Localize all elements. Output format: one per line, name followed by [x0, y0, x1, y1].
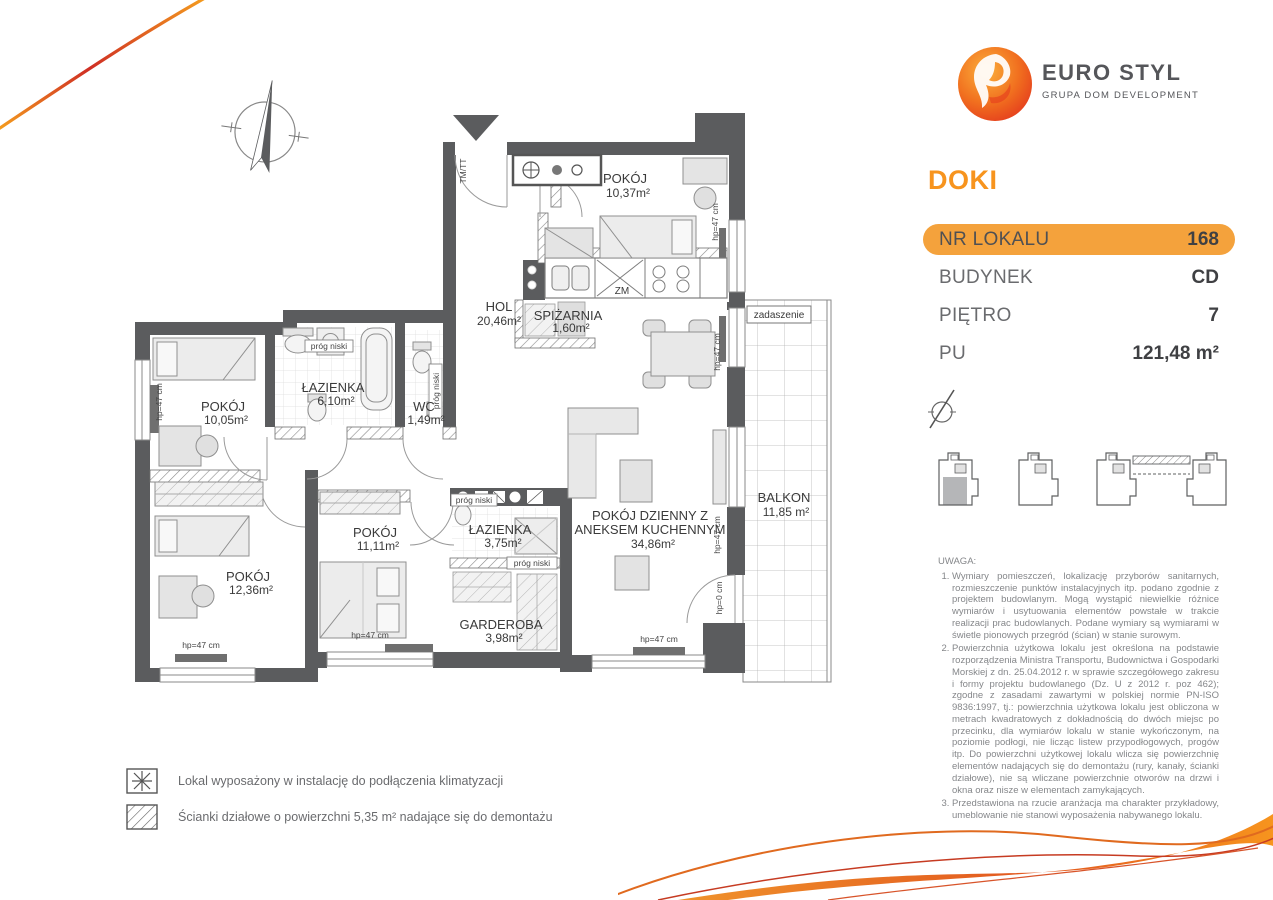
svg-text:hp=47 cm: hp=47 cm [640, 634, 678, 644]
svg-text:hp=47 cm: hp=47 cm [182, 640, 220, 650]
air-conditioning-symbol-icon [126, 768, 158, 794]
room-label: ŁAZIENKA [302, 380, 365, 395]
brand-name: EURO STYL [1042, 60, 1199, 86]
brand-text-block: EURO STYL GRUPA DOM DEVELOPMENT [1042, 60, 1199, 101]
notes-block: UWAGA: Wymiary pomieszczeń, lokalizację … [938, 556, 1219, 824]
info-label: PIĘTRO [939, 305, 1012, 327]
mini-compass-icon [926, 384, 960, 434]
info-label: PU [939, 343, 966, 365]
info-value: 168 [1187, 229, 1219, 251]
svg-text:11,11m²: 11,11m² [357, 539, 399, 553]
legend-row-klimatyzacja: Lokal wyposażony w instalację do podłącz… [126, 768, 553, 794]
key-plan-building-1 [939, 453, 978, 505]
legend-text: Lokal wyposażony w instalację do podłącz… [178, 774, 503, 788]
svg-text:3,98m²: 3,98m² [485, 631, 522, 645]
room-label: HOL [486, 299, 513, 314]
svg-text:hp=0 cm: hp=0 cm [714, 582, 724, 615]
floor-plan: zadaszenie BALKON 11,85 m² [55, 70, 845, 710]
room-label: ŁAZIENKA [469, 522, 532, 537]
info-value: 7 [1208, 305, 1219, 327]
svg-text:10,37m²: 10,37m² [606, 186, 650, 200]
legend-row-scianki: Ścianki działowe o powierzchni 5,35 m² n… [126, 804, 553, 830]
svg-text:20,46m²: 20,46m² [477, 314, 521, 328]
notes-list: Wymiary pomieszczeń, lokalizację przybor… [938, 571, 1219, 822]
room-label: POKÓJ DZIENNY Z [592, 508, 708, 523]
svg-text:12,36m²: 12,36m² [229, 583, 273, 597]
compass-icon [216, 74, 316, 177]
room-label: GARDEROBA [459, 617, 542, 632]
info-row-nr-lokalu: NR LOKALU 168 [923, 224, 1235, 255]
balkon-area: 11,85 m² [763, 505, 809, 519]
svg-text:ANEKSEM KUCHENNYM: ANEKSEM KUCHENNYM [575, 522, 726, 537]
svg-text:TM/TT: TM/TT [458, 158, 468, 183]
info-value: 121,48 m² [1132, 343, 1219, 365]
info-label: BUDYNEK [939, 267, 1033, 289]
info-value: CD [1192, 267, 1219, 289]
bedroom-1236-furniture [155, 482, 263, 618]
notes-title: UWAGA: [938, 556, 1219, 568]
eurostyl-logo-icon [955, 44, 1035, 124]
svg-text:hp=47 cm: hp=47 cm [710, 203, 720, 241]
building-key-plans [933, 438, 1245, 526]
svg-text:próg niski: próg niski [456, 495, 492, 505]
svg-text:hp=47 cm: hp=47 cm [154, 383, 164, 421]
meter-box [513, 155, 601, 185]
svg-text:próg niski: próg niski [514, 558, 550, 568]
svg-text:hp=47 cm: hp=47 cm [712, 333, 722, 371]
key-plan-building-2 [1019, 453, 1058, 505]
svg-text:3,75m²: 3,75m² [484, 536, 521, 550]
note-item-2: Powierzchnia użytkowa lokalu jest określ… [952, 643, 1219, 796]
info-label: NR LOKALU [939, 229, 1049, 251]
unit-info-table: NR LOKALU 168 BUDYNEK CD PIĘTRO 7 PU 121… [923, 224, 1235, 376]
bedroom-1111-furniture [320, 492, 406, 638]
room-label: POKÓJ [201, 399, 245, 414]
info-row-budynek: BUDYNEK CD [923, 262, 1235, 293]
balkon-name: BALKON [758, 490, 811, 505]
svg-text:1,49m²: 1,49m² [407, 413, 444, 427]
floor-plan-page: EURO STYL GRUPA DOM DEVELOPMENT DOKI NR … [0, 0, 1273, 900]
room-label: WC [413, 399, 435, 414]
room-label: POKÓJ [353, 525, 397, 540]
note-item-1: Wymiary pomieszczeń, lokalizację przybor… [952, 571, 1219, 642]
svg-text:10,05m²: 10,05m² [204, 413, 248, 427]
info-row-pietro: PIĘTRO 7 [923, 300, 1235, 331]
svg-text:6,10m²: 6,10m² [317, 394, 354, 408]
legend-text: Ścianki działowe o powierzchni 5,35 m² n… [178, 810, 553, 824]
room-label: POKÓJ [603, 171, 647, 186]
entrance-arrow [453, 115, 499, 141]
project-title: DOKI [928, 165, 998, 196]
svg-text:próg niski: próg niski [311, 341, 347, 351]
svg-text:1,60m²: 1,60m² [552, 321, 589, 335]
brand-subtitle: GRUPA DOM DEVELOPMENT [1042, 90, 1199, 101]
room-label: POKÓJ [226, 569, 270, 584]
svg-text:34,86m²: 34,86m² [631, 537, 675, 551]
svg-text:hp=47 cm: hp=47 cm [351, 630, 389, 640]
zadaszenie-label: zadaszenie [754, 310, 805, 321]
key-plan-building-3 [1097, 453, 1226, 505]
demountable-wall-symbol-icon [126, 804, 158, 830]
dishwasher-label: ZM [615, 286, 629, 297]
note-item-3: Przedstawiona na rzucie aranżacja ma cha… [952, 798, 1219, 822]
legend: Lokal wyposażony w instalację do podłącz… [126, 768, 553, 840]
balcony: zadaszenie BALKON 11,85 m² [743, 300, 831, 682]
info-row-pu: PU 121,48 m² [923, 338, 1235, 369]
